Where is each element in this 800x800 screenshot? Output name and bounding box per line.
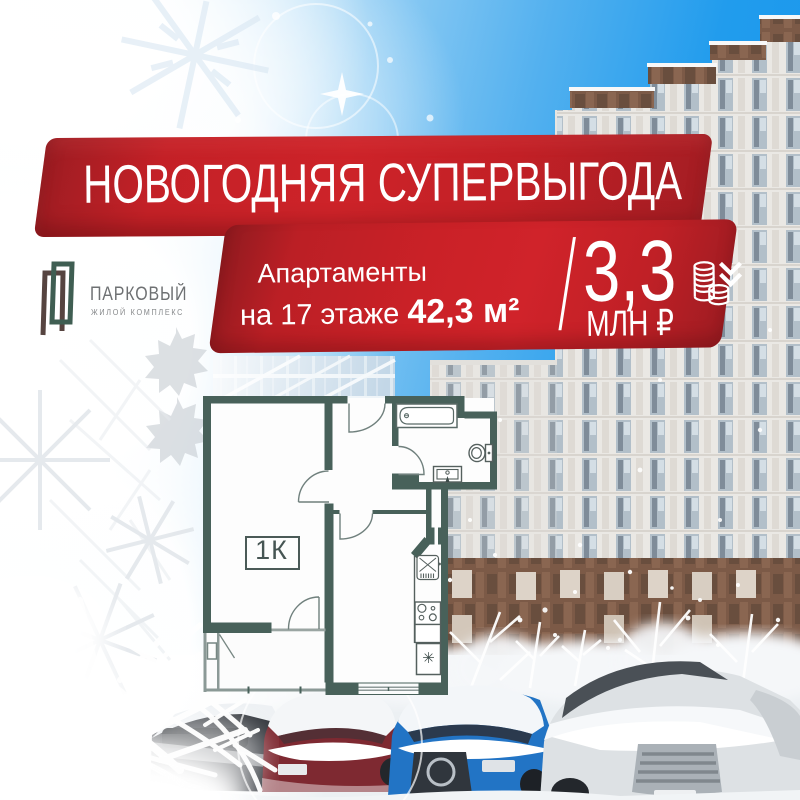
svg-text:✳: ✳ bbox=[422, 650, 435, 667]
svg-text:1К: 1К bbox=[255, 535, 288, 565]
